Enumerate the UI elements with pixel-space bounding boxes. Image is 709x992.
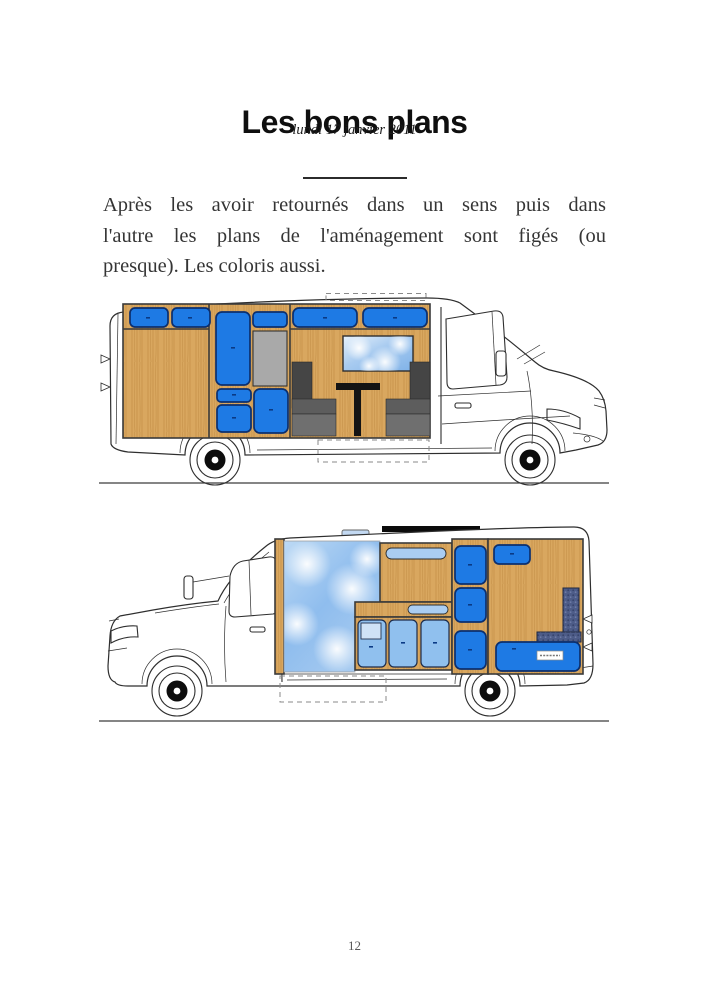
side-mirror: [496, 351, 506, 376]
side-mirror: [184, 576, 193, 599]
front-wheel: [152, 666, 202, 716]
door-window: [446, 311, 507, 389]
countertop-handle: [408, 605, 448, 614]
seat-cushion: [386, 399, 430, 414]
seat-base: [386, 414, 430, 436]
backrest-cushion: [563, 588, 579, 635]
door-handle: [455, 403, 471, 408]
document-page: Les bons plans lundi 17 janvier 2011 Apr…: [0, 0, 709, 992]
door-handle: [250, 627, 265, 632]
cabinet-flap-handle: [386, 548, 446, 559]
fridge-panel: [253, 331, 287, 386]
paragraph-line: presque). Les coloris aussi.: [103, 251, 606, 282]
table-top: [336, 383, 380, 390]
oven-window: [361, 623, 381, 639]
post-date: lundi 17 janvier 2011: [0, 122, 709, 139]
section-divider: [303, 177, 407, 179]
seat-base: [292, 414, 336, 436]
cabinet-door: [254, 389, 288, 433]
door-window: [229, 557, 279, 617]
rear-wheel: [190, 435, 240, 485]
table-leg: [354, 390, 361, 436]
paragraph-line: l'autre les plans de l'aménagement sont …: [103, 221, 606, 252]
van-figure-top: [97, 292, 612, 488]
article-paragraph: Après les avoir retournés dans un sens p…: [103, 190, 606, 282]
wood-pillar: [275, 539, 284, 674]
rear-door-hinges: [101, 355, 110, 391]
interior-layout: [275, 539, 583, 674]
dinette-window: [343, 332, 413, 378]
paragraph-line: Après les avoir retournés dans un sens p…: [103, 190, 606, 221]
seat-cushion: [537, 632, 581, 642]
page-number: 12: [0, 938, 709, 954]
camper-van-profile-left: [97, 514, 612, 730]
small-cabinet-door: [253, 312, 287, 327]
interior-layout: [123, 304, 430, 438]
seat-cushion: [292, 399, 336, 414]
front-wheel: [505, 435, 555, 485]
camper-van-profile-right: [97, 292, 612, 488]
van-figure-bottom: [97, 514, 612, 730]
bench-brand-label: [537, 651, 563, 660]
